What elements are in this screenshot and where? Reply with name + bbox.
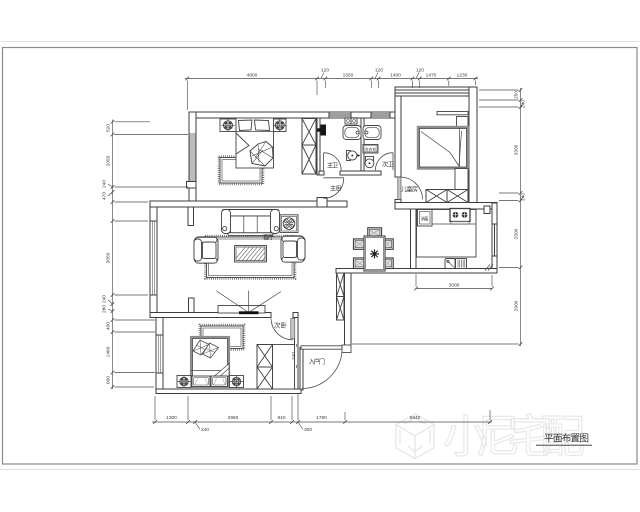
- svg-text:客厅: 客厅: [263, 234, 274, 242]
- svg-text:5840: 5840: [410, 415, 421, 421]
- svg-text:2500: 2500: [514, 228, 520, 239]
- svg-text:1790: 1790: [316, 415, 327, 421]
- svg-text:消毒: 消毒: [421, 216, 430, 223]
- svg-text:120: 120: [321, 68, 329, 74]
- svg-text:240: 240: [521, 193, 527, 201]
- svg-text:1230: 1230: [457, 73, 468, 79]
- svg-text:280: 280: [102, 305, 108, 313]
- svg-text:4800: 4800: [247, 73, 258, 79]
- svg-text:300: 300: [304, 427, 312, 433]
- svg-text:主卫: 主卫: [327, 162, 338, 170]
- svg-text:240: 240: [291, 352, 297, 360]
- svg-text:520: 520: [106, 124, 112, 132]
- svg-text:1400: 1400: [390, 73, 401, 79]
- svg-text:120: 120: [416, 68, 424, 74]
- svg-text:3000: 3000: [449, 283, 460, 289]
- svg-text:次卧: 次卧: [274, 321, 288, 330]
- svg-text:240: 240: [102, 180, 108, 188]
- svg-text:3300: 3300: [514, 144, 520, 155]
- svg-text:840: 840: [277, 415, 285, 421]
- svg-text:2050: 2050: [106, 155, 112, 166]
- svg-text:1460: 1460: [106, 346, 112, 357]
- svg-text:470: 470: [102, 192, 108, 200]
- svg-text:1550: 1550: [343, 73, 354, 79]
- svg-text:平面布置图: 平面布置图: [544, 433, 589, 445]
- svg-text:2900: 2900: [514, 300, 520, 311]
- svg-text:入户门: 入户门: [309, 357, 326, 366]
- svg-text:洗衣机: 洗衣机: [365, 146, 377, 152]
- svg-text:240: 240: [201, 427, 209, 433]
- svg-text:2960: 2960: [228, 415, 239, 421]
- svg-text:240: 240: [102, 295, 108, 303]
- svg-text:1300: 1300: [166, 415, 177, 421]
- svg-text:250: 250: [514, 91, 520, 99]
- svg-text:儿童房: 儿童房: [401, 186, 418, 194]
- svg-text:次卫: 次卫: [382, 161, 394, 169]
- svg-text:120: 120: [375, 68, 383, 74]
- svg-text:1470: 1470: [426, 73, 437, 79]
- svg-text:600: 600: [106, 376, 112, 384]
- svg-text:3050: 3050: [106, 252, 112, 263]
- svg-text:400: 400: [106, 322, 112, 330]
- svg-text:240: 240: [521, 100, 527, 108]
- svg-text:主卧: 主卧: [330, 185, 342, 193]
